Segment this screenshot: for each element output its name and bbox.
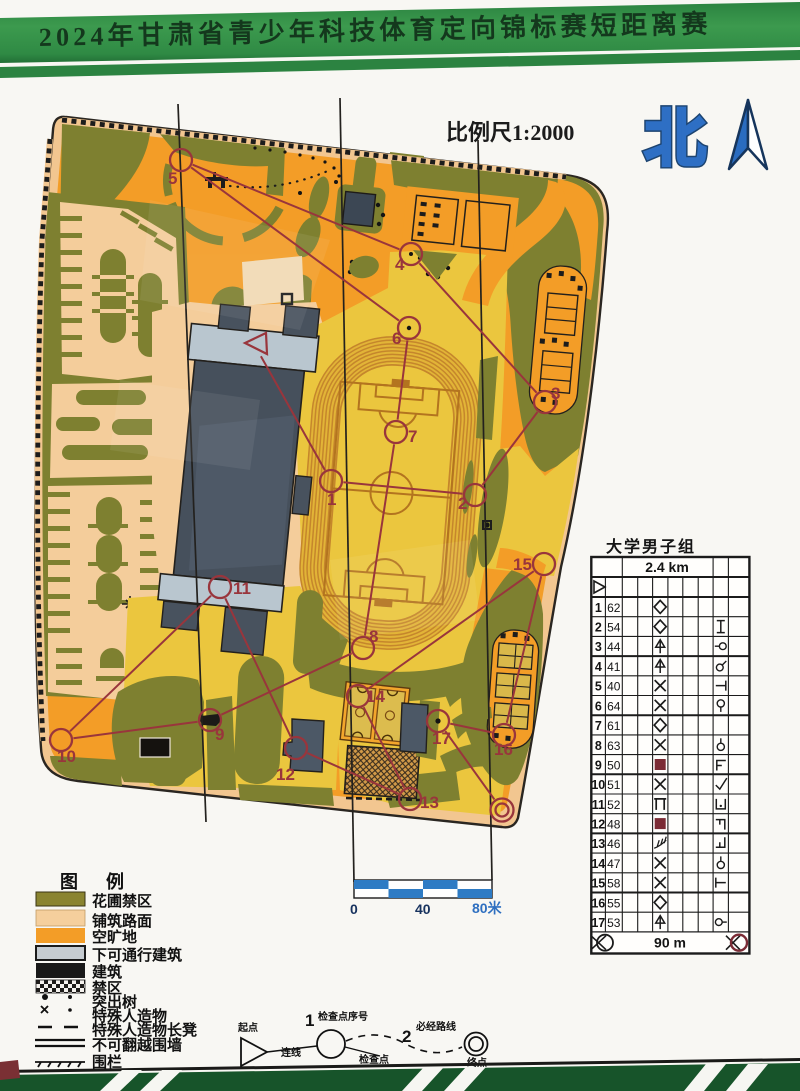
svg-text:14: 14 <box>591 857 605 871</box>
svg-text:检查点序号: 检查点序号 <box>318 1010 368 1023</box>
svg-text:17: 17 <box>432 729 451 748</box>
svg-text:下可通行建筑: 下可通行建筑 <box>92 946 182 964</box>
svg-text:40: 40 <box>415 901 431 917</box>
svg-text:4: 4 <box>595 660 602 674</box>
svg-text:47: 47 <box>607 857 621 871</box>
svg-text:铺筑路面: 铺筑路面 <box>92 912 152 930</box>
svg-text:15: 15 <box>513 555 532 574</box>
svg-text:16: 16 <box>591 896 605 910</box>
svg-text:空旷地: 空旷地 <box>92 928 137 946</box>
svg-text:2: 2 <box>595 621 602 635</box>
svg-text:6: 6 <box>595 699 602 713</box>
svg-text:11: 11 <box>233 579 251 598</box>
svg-text:2.4 km: 2.4 km <box>645 559 689 575</box>
svg-text:1: 1 <box>305 1011 314 1030</box>
svg-text:0: 0 <box>350 901 358 917</box>
svg-text:8: 8 <box>595 739 602 753</box>
svg-text:11: 11 <box>592 798 605 812</box>
svg-text:58: 58 <box>607 877 621 891</box>
svg-text:3: 3 <box>595 640 602 654</box>
svg-text:2: 2 <box>402 1027 411 1046</box>
svg-text:41: 41 <box>607 660 621 674</box>
svg-text:63: 63 <box>607 739 621 753</box>
svg-text:图例: 图例 <box>60 871 152 892</box>
svg-text:13: 13 <box>591 837 605 851</box>
svg-text:17: 17 <box>591 916 605 930</box>
svg-text:48: 48 <box>607 818 621 832</box>
svg-text:1: 1 <box>595 601 602 615</box>
svg-text:10: 10 <box>57 747 76 766</box>
svg-text:大学男子组: 大学男子组 <box>606 537 696 556</box>
svg-text:9: 9 <box>595 759 602 773</box>
svg-text:5: 5 <box>168 169 177 188</box>
svg-text:比例尺1:2000: 比例尺1:2000 <box>446 120 574 145</box>
svg-text:16: 16 <box>494 740 513 759</box>
svg-text:7: 7 <box>408 427 417 446</box>
svg-text:15: 15 <box>591 877 605 891</box>
svg-text:不可翻越围墙: 不可翻越围墙 <box>92 1036 182 1054</box>
svg-text:1: 1 <box>327 490 336 509</box>
svg-text:起点: 起点 <box>237 1021 258 1034</box>
svg-text:12: 12 <box>591 818 605 832</box>
svg-text:9: 9 <box>215 725 224 744</box>
svg-text:55: 55 <box>607 896 621 910</box>
svg-text:10: 10 <box>591 778 605 792</box>
svg-text:51: 51 <box>607 778 621 792</box>
svg-text:北: 北 <box>644 105 706 174</box>
svg-text:4: 4 <box>395 255 405 274</box>
svg-text:连线: 连线 <box>281 1046 301 1059</box>
svg-text:12: 12 <box>276 765 295 784</box>
svg-text:6: 6 <box>392 329 401 348</box>
svg-text:3: 3 <box>551 384 560 403</box>
svg-text:2: 2 <box>458 494 467 513</box>
svg-text:44: 44 <box>607 640 621 654</box>
svg-text:64: 64 <box>607 699 621 713</box>
svg-text:80米: 80米 <box>472 900 503 916</box>
svg-text:花圃禁区: 花圃禁区 <box>92 892 152 910</box>
svg-text:8: 8 <box>369 627 378 646</box>
svg-text:50: 50 <box>607 759 621 773</box>
svg-text:53: 53 <box>607 916 621 930</box>
svg-text:90 m: 90 m <box>654 935 686 951</box>
svg-text:7: 7 <box>595 719 602 733</box>
svg-text:建筑: 建筑 <box>92 963 122 981</box>
svg-text:13: 13 <box>420 793 439 812</box>
svg-text:62: 62 <box>607 601 621 615</box>
svg-text:5: 5 <box>595 680 602 694</box>
svg-text:61: 61 <box>607 719 621 733</box>
svg-text:52: 52 <box>607 798 621 812</box>
svg-text:检查点: 检查点 <box>359 1053 389 1066</box>
svg-text:46: 46 <box>607 837 621 851</box>
svg-text:14: 14 <box>366 687 385 706</box>
svg-text:54: 54 <box>607 621 621 635</box>
svg-text:必经路线: 必经路线 <box>415 1020 456 1033</box>
svg-text:40: 40 <box>607 680 621 694</box>
